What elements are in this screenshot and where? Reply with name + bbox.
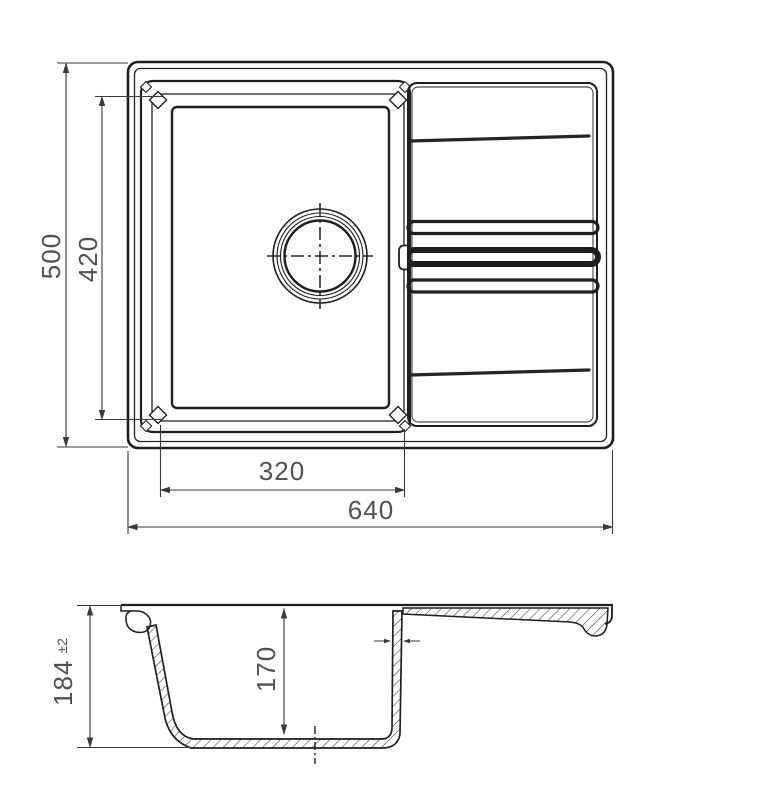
section-left-edge <box>121 605 151 632</box>
drainboard-channel-bars <box>399 222 598 293</box>
dim-label-bowl-width: 320 <box>259 458 305 484</box>
sink-technical-drawing: 500 420 320 640 184±2 170 <box>0 0 764 800</box>
drainboard-groove-top <box>410 136 589 141</box>
drainboard <box>399 83 598 426</box>
dim-label-bowl-length: 420 <box>75 236 101 282</box>
sink-outer-edge <box>128 62 613 448</box>
drainboard-groove-bottom <box>410 370 589 375</box>
drain-outline <box>267 203 373 309</box>
drawing-linework <box>0 0 764 800</box>
dimension-170 <box>281 608 287 735</box>
dim-label-overall-height-value: 184 <box>48 660 78 706</box>
dim-label-overall-depth: 500 <box>38 233 64 279</box>
drain-centerlines <box>267 203 373 309</box>
sink-inner-rim <box>135 69 607 442</box>
dim-label-bowl-inner-depth: 170 <box>253 646 279 692</box>
section-drainboard-slab <box>403 608 608 636</box>
dim-label-overall-width: 640 <box>348 497 394 523</box>
dim-label-overall-height: 184±2 <box>50 638 76 706</box>
dim-label-height-tolerance: ±2 <box>54 638 70 653</box>
top-view <box>57 62 614 534</box>
section-view <box>77 605 613 764</box>
